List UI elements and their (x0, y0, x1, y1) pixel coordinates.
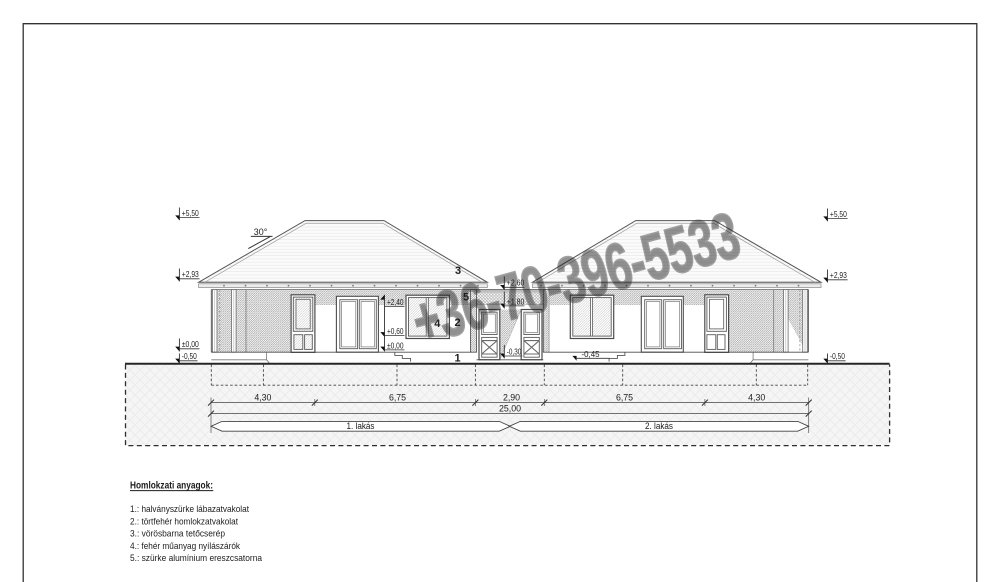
svg-text:4,30: 4,30 (254, 392, 271, 402)
svg-text:+2,93: +2,93 (830, 270, 847, 280)
svg-text:-0,50: -0,50 (830, 351, 845, 361)
svg-text:+0,60: +0,60 (387, 326, 404, 336)
svg-text:Homlokzati anyagok:: Homlokzati anyagok: (130, 481, 213, 492)
svg-text:+2,40: +2,40 (387, 297, 404, 307)
svg-text:+5,50: +5,50 (182, 208, 199, 218)
svg-text:4,30: 4,30 (748, 392, 765, 402)
svg-text:+2,93: +2,93 (182, 269, 199, 279)
svg-text:5.: szürke alumínium ereszcsat: 5.: szürke alumínium ereszcsatorna (130, 552, 263, 563)
svg-text:30°: 30° (254, 227, 268, 237)
svg-text:1.: halványszürke lábazatvakol: 1.: halványszürke lábazatvakolat (130, 503, 249, 514)
svg-text:-0,50: -0,50 (182, 351, 197, 361)
svg-text:-0,30: -0,30 (507, 346, 522, 356)
svg-text:2.: törtfehér homlokzatvakolat: 2.: törtfehér homlokzatvakolat (130, 516, 238, 527)
svg-text:+5,50: +5,50 (830, 209, 847, 219)
svg-text:2,90: 2,90 (503, 392, 520, 402)
svg-text:6,75: 6,75 (389, 392, 406, 402)
svg-text:25,00: 25,00 (499, 403, 521, 413)
svg-text:1. lakás: 1. lakás (347, 421, 376, 431)
svg-text:3.: vörösbarna tetőcserép: 3.: vörösbarna tetőcserép (130, 528, 225, 539)
svg-text:6,75: 6,75 (616, 392, 633, 402)
svg-text:2. lakás: 2. lakás (645, 421, 674, 431)
svg-text:4.: fehér műanyag nyílászárók: 4.: fehér műanyag nyílászárók (130, 540, 240, 551)
svg-text:-0,45: -0,45 (582, 349, 600, 359)
svg-text:±0,00: ±0,00 (387, 340, 404, 350)
svg-text:±0,00: ±0,00 (182, 339, 199, 349)
svg-text:1: 1 (455, 353, 461, 365)
